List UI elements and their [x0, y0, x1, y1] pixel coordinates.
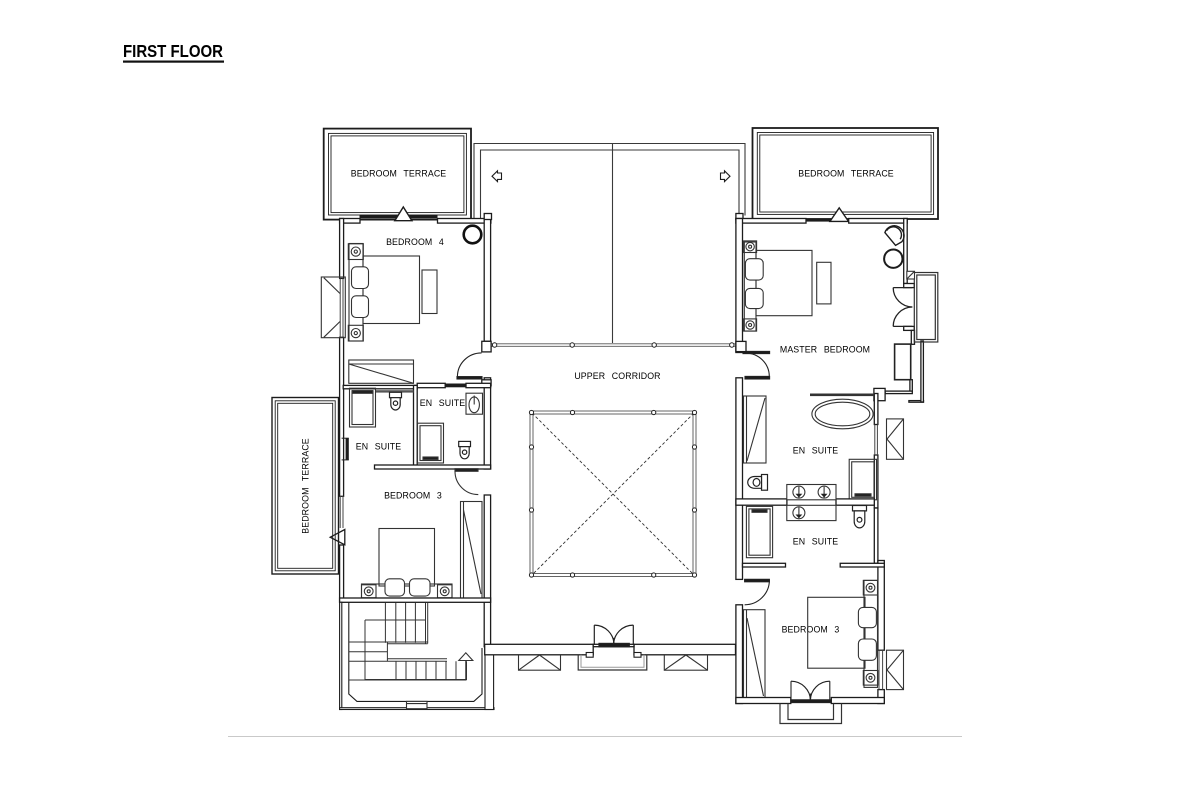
- svg-text:BEDROOM 4: BEDROOM 4: [386, 237, 444, 247]
- svg-text:EN SUITE: EN SUITE: [420, 398, 466, 408]
- svg-text:MASTER BEDROOM: MASTER BEDROOM: [780, 345, 870, 355]
- svg-text:EN SUITE: EN SUITE: [356, 442, 402, 452]
- svg-text:BEDROOM TERRACE: BEDROOM TERRACE: [798, 169, 894, 179]
- svg-text:FIRST FLOOR: FIRST FLOOR: [123, 41, 223, 61]
- svg-text:BEDROOM TERRACE: BEDROOM TERRACE: [301, 438, 311, 534]
- svg-text:BEDROOM 3: BEDROOM 3: [782, 625, 840, 635]
- svg-text:BEDROOM TERRACE: BEDROOM TERRACE: [351, 169, 447, 179]
- svg-text:UPPER CORRIDOR: UPPER CORRIDOR: [574, 371, 660, 381]
- svg-text:EN SUITE: EN SUITE: [793, 446, 839, 456]
- svg-text:BEDROOM 3: BEDROOM 3: [384, 491, 442, 501]
- svg-text:EN SUITE: EN SUITE: [793, 537, 839, 547]
